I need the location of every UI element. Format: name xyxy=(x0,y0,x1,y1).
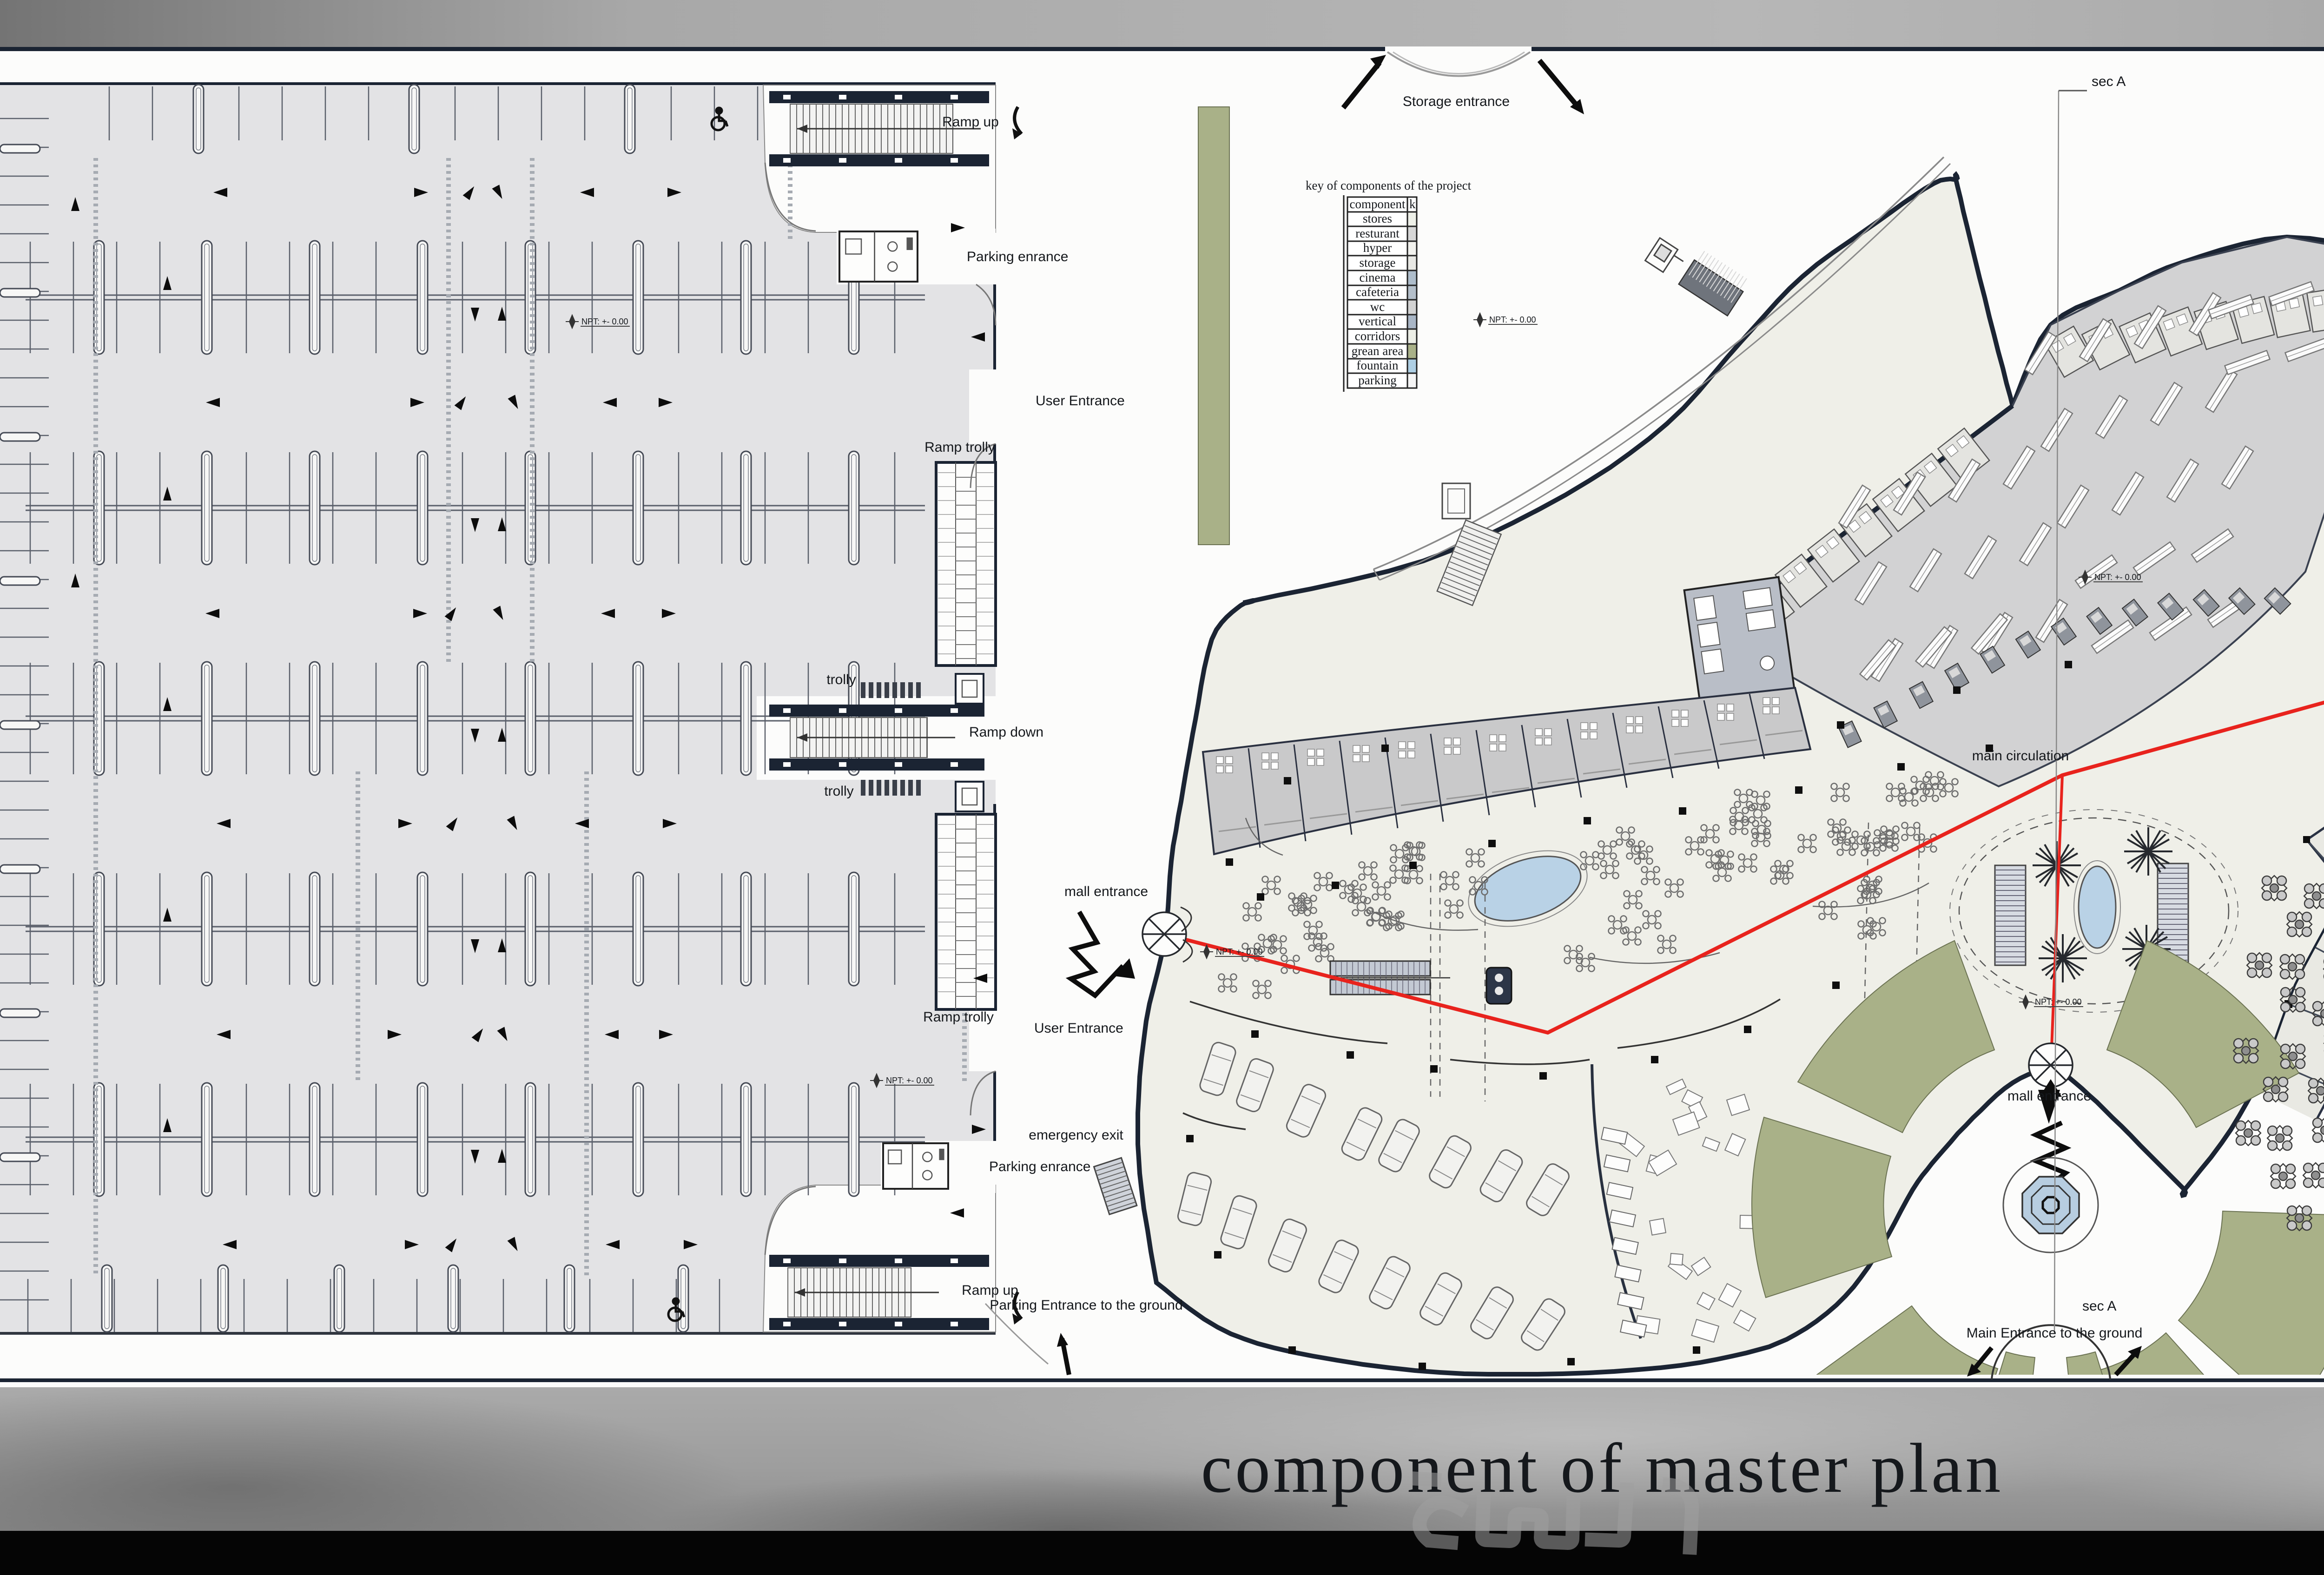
svg-text:Parking Entrance to the ground: Parking Entrance to the ground xyxy=(990,1298,1182,1313)
svg-text:NPT: +- 0.00: NPT: +- 0.00 xyxy=(1489,315,1536,324)
svg-text:emergency exit: emergency exit xyxy=(1029,1127,1123,1143)
svg-text:NPT: +- 0.00: NPT: +- 0.00 xyxy=(581,317,628,326)
svg-text:Ramp trolly: Ramp trolly xyxy=(924,440,995,455)
svg-text:sec A: sec A xyxy=(2092,74,2126,89)
svg-text:grean area: grean area xyxy=(1352,344,1404,358)
svg-text:trolly: trolly xyxy=(824,784,853,799)
svg-text:resturant: resturant xyxy=(1355,226,1400,240)
svg-text:hyper: hyper xyxy=(1363,241,1392,255)
svg-text:component of master plan: component of master plan xyxy=(1201,1429,2004,1507)
svg-text:cinema: cinema xyxy=(1360,270,1396,284)
svg-text:Storage entrance: Storage entrance xyxy=(1403,94,1510,109)
svg-text:Ramp up: Ramp up xyxy=(962,1283,1018,1298)
svg-text:storage: storage xyxy=(1360,256,1396,270)
svg-text:component: component xyxy=(1350,197,1406,211)
svg-text:User Entrance: User Entrance xyxy=(1034,1021,1123,1036)
svg-text:fountain: fountain xyxy=(1357,358,1399,372)
svg-text:Parking enrance: Parking enrance xyxy=(989,1159,1090,1174)
svg-text:NPT: +- 0.00: NPT: +- 0.00 xyxy=(2035,997,2082,1007)
svg-text:mall entrance: mall entrance xyxy=(1064,884,1148,899)
svg-text:Ramp down: Ramp down xyxy=(969,725,1043,740)
svg-text:key of components of the proje: key of components of the project xyxy=(1306,178,1472,192)
svg-text:main circulation: main circulation xyxy=(1972,748,2069,764)
svg-text:NPT: +- 0.00: NPT: +- 0.00 xyxy=(886,1076,933,1085)
svg-text:cafeteria: cafeteria xyxy=(1356,285,1399,299)
svg-text:corridors: corridors xyxy=(1355,329,1400,343)
svg-text:k: k xyxy=(1409,197,1416,211)
svg-text:vertical: vertical xyxy=(1359,314,1396,328)
svg-text:Ramp trolly: Ramp trolly xyxy=(923,1009,994,1025)
svg-text:wc: wc xyxy=(1370,300,1385,314)
svg-text:Parking enrance: Parking enrance xyxy=(967,249,1068,264)
svg-text:sec A: sec A xyxy=(2082,1298,2116,1314)
svg-text:NPT: +- 0.00: NPT: +- 0.00 xyxy=(1216,947,1263,956)
svg-text:trolly: trolly xyxy=(826,672,856,687)
svg-text:parking: parking xyxy=(1358,373,1396,387)
svg-text:Ramp up: Ramp up xyxy=(942,114,999,130)
svg-text:stores: stores xyxy=(1363,211,1392,225)
svg-text:NPT: +- 0.00: NPT: +- 0.00 xyxy=(2094,573,2141,582)
svg-text:Main Entrance to the ground: Main Entrance to the ground xyxy=(1967,1325,2143,1341)
svg-text:mall entrance: mall entrance xyxy=(2007,1088,2091,1104)
svg-text:User Entrance: User Entrance xyxy=(1036,393,1125,409)
